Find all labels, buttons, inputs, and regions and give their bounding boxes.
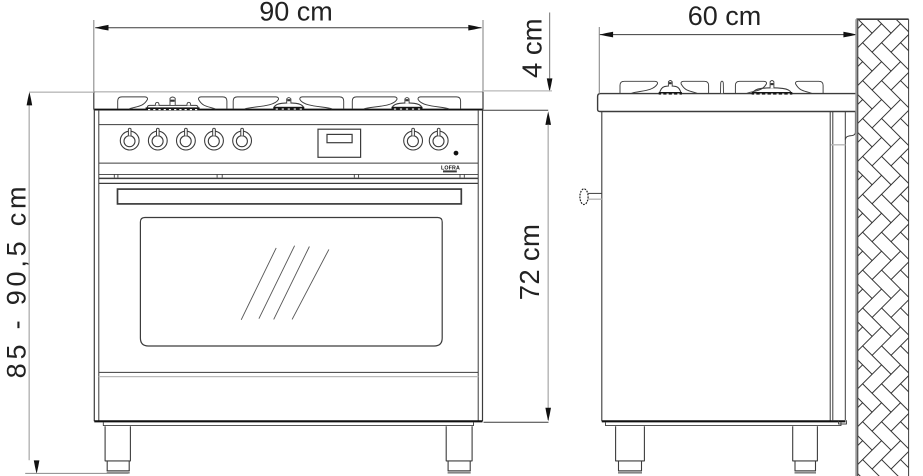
svg-text:60 cm: 60 cm xyxy=(688,1,762,31)
svg-text:85 - 90,5 cm: 85 - 90,5 cm xyxy=(2,183,32,379)
svg-text:90 cm: 90 cm xyxy=(259,0,333,26)
svg-text:72 cm: 72 cm xyxy=(514,224,545,300)
svg-text:4 cm: 4 cm xyxy=(516,18,547,78)
